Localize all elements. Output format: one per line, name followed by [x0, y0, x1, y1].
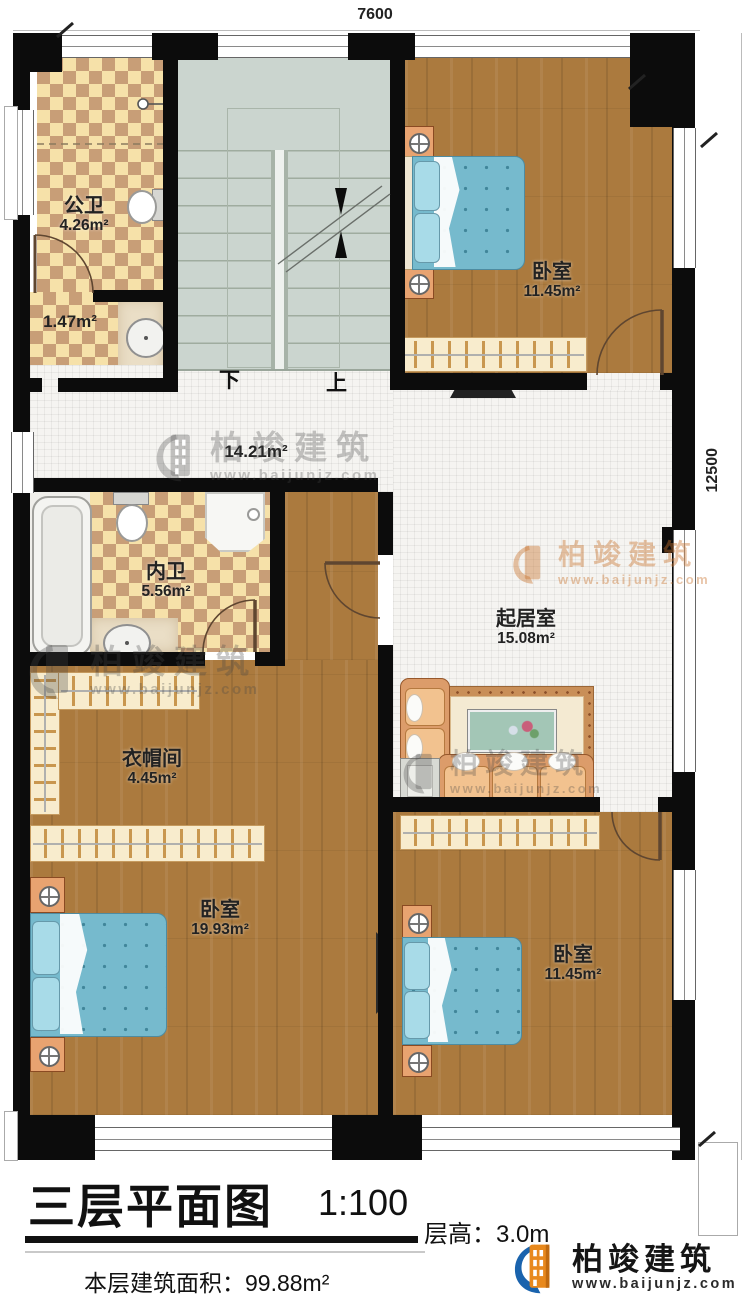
floor-plan-canvas: 7600 12500 公卫 4.26m² 1.47m² 卧室 11.45m² 1…	[0, 0, 750, 1306]
bed-pillow	[414, 161, 440, 211]
bed-pillow	[404, 991, 430, 1039]
wardrobe-hanger-rack	[58, 672, 200, 710]
stair-up-label: 上	[326, 367, 347, 397]
faucet-dot	[144, 336, 148, 340]
window	[422, 1127, 680, 1151]
room-label-bedroom-bl: 卧室 19.93m²	[191, 899, 249, 939]
nightstand	[30, 1037, 65, 1072]
window	[62, 35, 152, 58]
logo-brand-name: 柏竣建筑	[572, 1244, 737, 1277]
nightstand	[30, 877, 65, 913]
sofa-pillow	[500, 752, 528, 771]
room-label-bedroom-br: 卧室 11.45m²	[545, 944, 602, 984]
wall-segment	[393, 797, 600, 812]
window-sill	[4, 1111, 18, 1161]
wardrobe-hanger-rack	[400, 337, 587, 372]
room-label-cloakroom: 衣帽间 4.45m²	[122, 748, 182, 788]
side-table-top	[407, 765, 433, 797]
corner-shower-icon	[205, 492, 265, 552]
nightstand	[401, 126, 434, 158]
sofa-pillow	[406, 694, 423, 722]
title-underline-thin	[25, 1251, 425, 1253]
wall-segment	[378, 492, 393, 555]
sofa-pillow	[548, 752, 576, 771]
wardrobe-hanger-rack	[400, 815, 600, 850]
fan-icon	[39, 886, 60, 907]
window	[218, 35, 348, 58]
nightstand	[402, 1045, 432, 1077]
bed-pillow	[414, 213, 440, 263]
wall-segment	[378, 645, 393, 1115]
nightstand	[402, 905, 432, 939]
sofa-pillow	[452, 752, 480, 771]
wall-segment	[30, 478, 378, 492]
table-flowers-icon	[500, 716, 544, 742]
stair-edge-line	[178, 369, 390, 371]
bed-pillow	[32, 921, 60, 975]
wall-segment	[660, 373, 672, 390]
wall-segment	[152, 33, 218, 60]
window	[95, 1127, 332, 1151]
window	[11, 432, 34, 493]
wall-segment	[93, 290, 163, 302]
window	[673, 870, 696, 1000]
fan-icon	[408, 913, 429, 934]
fan-icon	[39, 1046, 60, 1067]
room-label-public-bath: 公卫 4.26m²	[59, 195, 108, 235]
wardrobe-hanger-rack	[30, 825, 265, 862]
bed-pillow	[32, 977, 60, 1031]
fan-icon	[408, 1052, 429, 1073]
nightstand	[401, 266, 434, 299]
stair-down-label: 下	[219, 364, 240, 394]
toilet-icon	[116, 504, 148, 542]
faucet-dot	[125, 641, 129, 645]
fan-icon	[409, 133, 430, 154]
shower-drain	[247, 508, 260, 521]
wall-segment	[630, 33, 695, 127]
plan-scale: 1:100	[318, 1182, 408, 1224]
wall-segment	[270, 492, 285, 660]
window	[415, 35, 630, 58]
toilet-icon	[127, 190, 157, 224]
room-label-ante-bath: 1.47m²	[43, 312, 97, 332]
window	[673, 128, 696, 268]
dimension-width: 7600	[357, 6, 393, 24]
logo-brand-url: www.baijunjz.com	[572, 1276, 737, 1292]
room-label-hallway: 14.21m²	[224, 442, 287, 462]
bathtub-basin	[41, 505, 83, 647]
wardrobe-hanger-rack	[30, 672, 60, 815]
wall-segment	[680, 1115, 695, 1160]
wall-segment	[390, 58, 405, 390]
room-label-master-bath: 内卫 5.56m²	[141, 561, 190, 601]
window-sill	[698, 1142, 738, 1236]
company-logo: 柏竣建筑 www.baijunjz.com	[508, 1238, 737, 1298]
wall-segment	[390, 373, 587, 390]
wall-segment	[255, 652, 285, 666]
wall-segment	[30, 378, 42, 392]
floor-master-suite	[30, 660, 378, 1115]
dimension-line-top	[13, 30, 700, 31]
stair-divider-rail	[271, 150, 288, 370]
plan-title: 三层平面图	[28, 1168, 273, 1237]
wall-segment	[13, 1115, 95, 1160]
title-underline-thick	[25, 1236, 418, 1243]
window	[673, 530, 696, 772]
room-label-bedroom-tr: 卧室 11.45m²	[524, 261, 581, 301]
floor-area-note: 本层建筑面积：99.88m²	[84, 1264, 329, 1298]
wall-segment	[13, 33, 62, 72]
wall-segment	[658, 797, 672, 812]
fan-icon	[409, 274, 430, 295]
floor-suite-vestibule	[285, 492, 378, 660]
room-label-living: 起居室 15.08m²	[496, 608, 556, 648]
dimension-height: 12500	[704, 448, 722, 493]
window-sill	[4, 106, 18, 220]
bathtub-icon	[32, 496, 92, 656]
wall-segment	[13, 652, 205, 666]
dimension-line-right	[741, 33, 742, 1160]
logo-building-icon	[508, 1238, 562, 1298]
wall-segment	[58, 378, 178, 392]
wall-segment	[332, 1115, 422, 1160]
bed-pillow	[404, 942, 430, 990]
logo-text: 柏竣建筑 www.baijunjz.com	[572, 1244, 737, 1293]
floor-public-bath	[37, 58, 163, 292]
sink-icon	[126, 318, 166, 358]
wall-segment	[163, 58, 178, 392]
wall-segment	[348, 33, 415, 60]
